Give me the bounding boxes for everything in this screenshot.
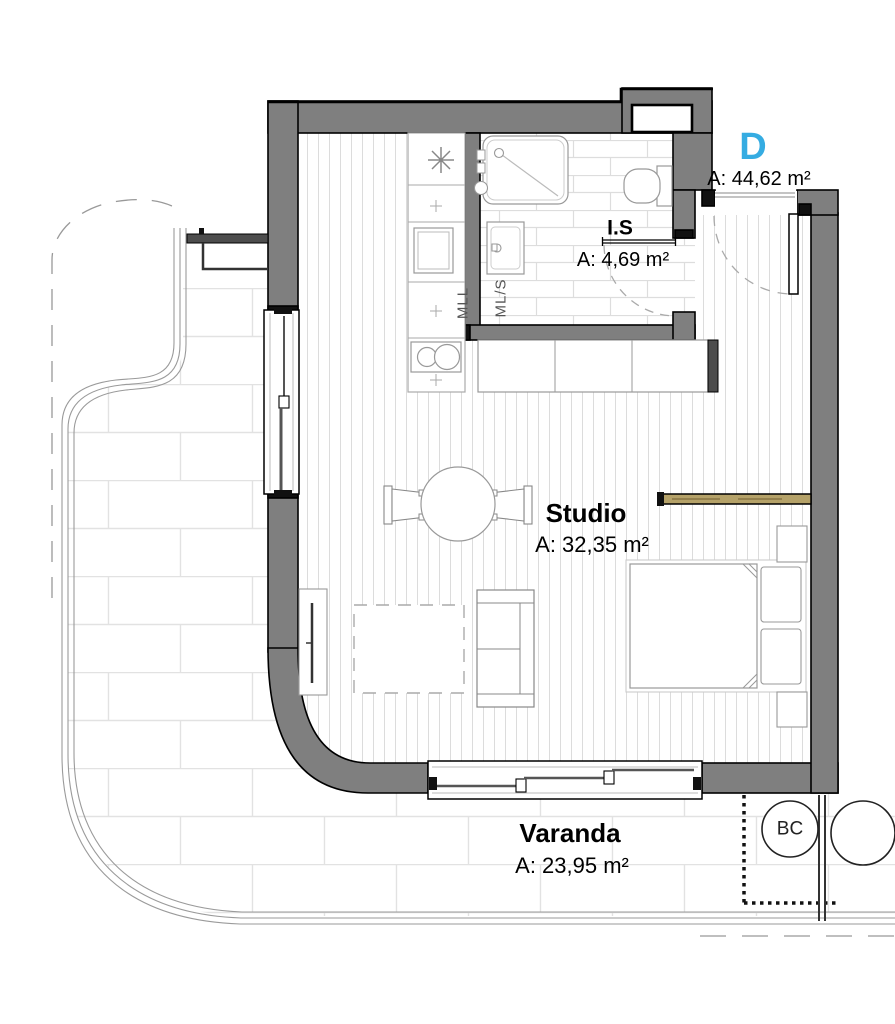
entry-jamb-right: [799, 204, 811, 215]
right-wall: [811, 213, 838, 793]
entry-door-leaf: [789, 214, 798, 294]
dishwasher-label: MLL: [456, 287, 471, 319]
wardrobe-end: [708, 340, 718, 392]
left-window: [264, 308, 299, 496]
nightstand: [777, 526, 807, 562]
sliding-door: [428, 761, 702, 799]
nightstand: [777, 692, 807, 727]
door-jamb: [675, 230, 693, 238]
entry-column: [673, 133, 712, 190]
bathroom-label: I.S: [607, 218, 633, 239]
unit-area: A: 44,62 m²: [707, 169, 810, 189]
mattress: [630, 564, 757, 688]
oven-inner: [418, 232, 449, 269]
toilet-icon: [624, 166, 672, 206]
left-wall-lower: [268, 492, 298, 652]
bathroom-south-wall: [458, 325, 695, 340]
kitchen-fixtures: [408, 133, 465, 392]
bc-label: BC: [777, 820, 803, 839]
tv-unit: [299, 589, 327, 695]
shower-icon: [475, 136, 569, 204]
unit-label: D: [739, 128, 766, 166]
floor-plan: D A: 44,62 m² I.S A: 4,69 m² Studio A: 3…: [0, 0, 895, 1024]
left-wall-upper: [268, 101, 298, 312]
studio-area: A: 32,35 m²: [535, 534, 649, 556]
sofa: [477, 590, 534, 707]
pillow: [761, 567, 801, 622]
kitchen-sink-icon: [411, 342, 461, 372]
washer-label: ML/S: [494, 278, 509, 317]
studio-label: Studio: [546, 500, 627, 526]
bathroom-east-wall-bottom: [673, 312, 695, 340]
bc-circle-neighbor: [831, 801, 895, 865]
balcony-label: Varanda: [519, 820, 620, 846]
entry-jamb-left: [702, 190, 715, 206]
partition-end-cap: [657, 492, 664, 506]
bathroom-sink-icon: [487, 222, 524, 274]
wardrobe: [478, 340, 708, 392]
rug: [354, 605, 464, 693]
dining-table: [421, 467, 495, 541]
pillow: [761, 629, 801, 684]
bathroom-area: A: 4,69 m²: [577, 250, 669, 270]
shaft: [632, 105, 692, 132]
balcony-area: A: 23,95 m²: [515, 855, 629, 877]
